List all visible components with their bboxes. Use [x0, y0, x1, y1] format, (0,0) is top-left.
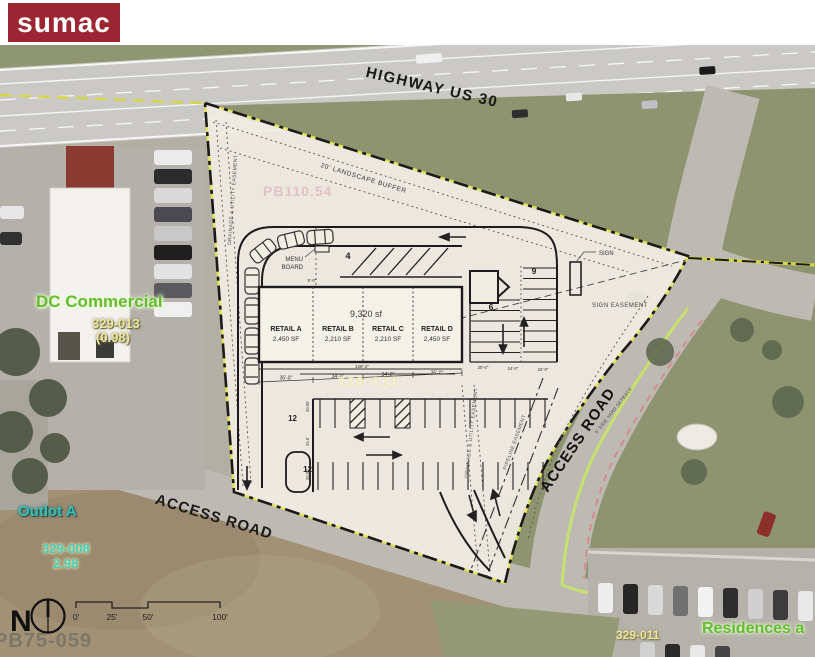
menu-board-label-1: MENU [285, 257, 303, 263]
scale-tick-50: 50' [142, 612, 153, 622]
unit-c-area: 2,210 SF [375, 336, 401, 343]
parcel-name-outlot-a: Outlot A [18, 503, 77, 520]
scale-tick-25: 25' [106, 612, 117, 622]
plat-ref-bottom-left: PB75-059 [0, 630, 92, 653]
aerial-photo: MENU BOARD 5'-0" 4 [0, 0, 815, 657]
parcel-name-residences: Residences a [702, 620, 804, 638]
unit-a-area: 2,450 SF [273, 336, 299, 343]
sign-easement-label: SIGN EASEMENT [592, 303, 648, 309]
parcel-id-residences: 329-011 [616, 628, 659, 642]
unit-c-name: RETAIL C [372, 326, 404, 333]
dim-total: 138'-2" [355, 364, 370, 369]
screenshot-root: MENU BOARD 5'-0" 4 [0, 0, 815, 657]
unit-d-name: RETAIL D [421, 326, 453, 333]
dim-bay1: 35'-0" [280, 376, 293, 382]
dim-w2: 24.0' [305, 437, 310, 446]
unit-b-area: 2,210 SF [325, 336, 351, 343]
site-parcel-watermark: 329-010 [338, 374, 400, 389]
dim-w3: 20.00' [305, 469, 310, 480]
menu-board-label-2: BOARD [282, 265, 304, 271]
stall-count-east-right: 9 [532, 266, 537, 276]
parcel-id-dc-commercial: 329-013 [92, 316, 140, 331]
parcel-name-dc-commercial: DC Commercial [36, 292, 163, 312]
scale-tick-0: 0' [73, 612, 80, 622]
sumac-logo: sumac [8, 3, 120, 42]
building-total-area: 9,320 sf [350, 309, 383, 319]
parcel-acreage-dc-commercial: (0.98) [96, 330, 130, 345]
top-bar: sumac [0, 0, 815, 45]
scale-tick-100: 100' [212, 612, 228, 622]
dim-east3: 20'-0" [538, 367, 549, 372]
sign-label: SIGN [599, 251, 614, 257]
menu-clearance-dim: 5'-0" [308, 278, 317, 283]
plat-ref-upper-watermark: PB110.54 [263, 183, 333, 199]
dim-east2: 24'-0" [508, 366, 519, 371]
parcel-acreage-outlot-a: 2.98 [53, 556, 78, 571]
unit-a-name: RETAIL A [270, 326, 301, 333]
unit-b-name: RETAIL B [322, 326, 354, 333]
dim-east1: 20'-0" [478, 365, 489, 370]
dc-building-roof [66, 146, 114, 190]
stall-count-drive-thru: 4 [345, 251, 350, 261]
ada-stall-1 [350, 399, 365, 428]
parcel-id-outlot-a: 329-008 [42, 541, 90, 556]
dim-bay4: 35'-0" [431, 371, 444, 377]
pond [677, 424, 717, 450]
unit-d-area: 2,450 SF [424, 336, 450, 343]
trash-enclosure [470, 271, 498, 303]
stall-count-row-a: 12 [288, 414, 297, 423]
dim-w1: 20.00' [305, 401, 310, 412]
ada-stall-2 [395, 399, 410, 428]
sumac-logo-text: sumac [17, 7, 111, 39]
